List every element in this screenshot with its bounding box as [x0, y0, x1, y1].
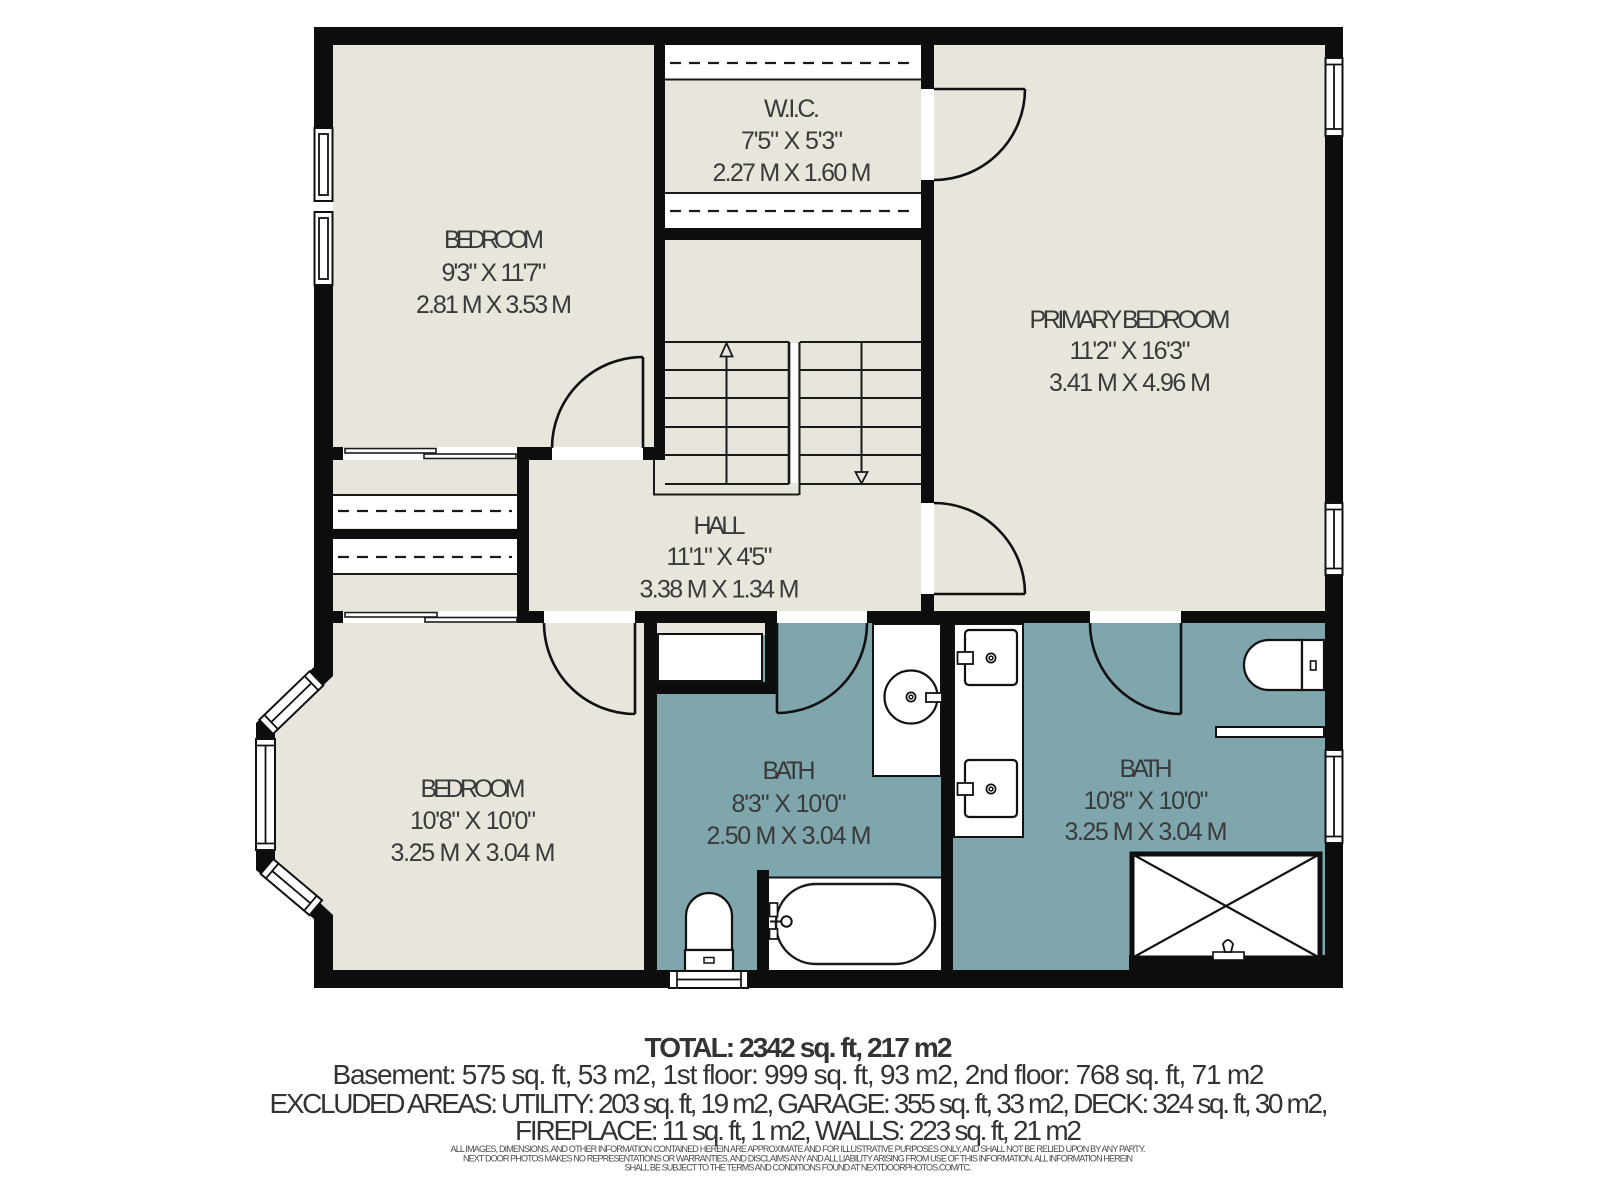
svg-text:2.50 M X 3.04 M: 2.50 M X 3.04 M: [707, 822, 872, 850]
svg-text:BEDROOM: BEDROOM: [421, 775, 526, 803]
svg-text:3.25 M X 3.04 M: 3.25 M X 3.04 M: [391, 839, 556, 867]
svg-text:Basement: 575 sq. ft, 53 m2, 1: Basement: 575 sq. ft, 53 m2, 1st floor: …: [333, 1059, 1265, 1090]
svg-text:BATH: BATH: [763, 757, 816, 785]
svg-text:11'1" X 4'5": 11'1" X 4'5": [667, 543, 773, 571]
svg-text:7'5" X 5'3": 7'5" X 5'3": [741, 127, 843, 155]
svg-text:10'8" X 10'0": 10'8" X 10'0": [410, 807, 536, 835]
svg-text:SHALL BE SUBJECT TO THE TERMS: SHALL BE SUBJECT TO THE TERMS AND CONDIT…: [625, 1163, 972, 1173]
svg-text:8'3" X 10'0": 8'3" X 10'0": [732, 790, 847, 818]
svg-text:FIREPLACE: 11 sq. ft, 1 m2, WA: FIREPLACE: 11 sq. ft, 1 m2, WALLS: 223 s…: [515, 1115, 1082, 1146]
svg-text:HALL: HALL: [694, 512, 746, 540]
svg-text:11'2" X 16'3": 11'2" X 16'3": [1070, 337, 1191, 365]
svg-text:2.27 M X 1.60 M: 2.27 M X 1.60 M: [713, 159, 872, 187]
svg-text:BEDROOM: BEDROOM: [444, 226, 544, 254]
svg-text:PRIMARY BEDROOM: PRIMARY BEDROOM: [1030, 306, 1231, 334]
svg-text:2.81 M X 3.53 M: 2.81 M X 3.53 M: [416, 291, 572, 319]
svg-text:BATH: BATH: [1120, 755, 1173, 783]
svg-text:9'3" X 11'7": 9'3" X 11'7": [442, 259, 547, 287]
svg-text:10'8" X 10'0": 10'8" X 10'0": [1084, 787, 1209, 815]
svg-text:3.25 M X 3.04 M: 3.25 M X 3.04 M: [1065, 818, 1228, 846]
svg-text:W.I.C.: W.I.C.: [764, 95, 820, 123]
svg-text:3.41 M X 4.96 M: 3.41 M X 4.96 M: [1049, 369, 1211, 397]
svg-text:ALL IMAGES, DIMENSIONS, AND OT: ALL IMAGES, DIMENSIONS, AND OTHER INFORM…: [451, 1144, 1146, 1154]
svg-text:3.38 M X 1.34 M: 3.38 M X 1.34 M: [640, 576, 800, 604]
